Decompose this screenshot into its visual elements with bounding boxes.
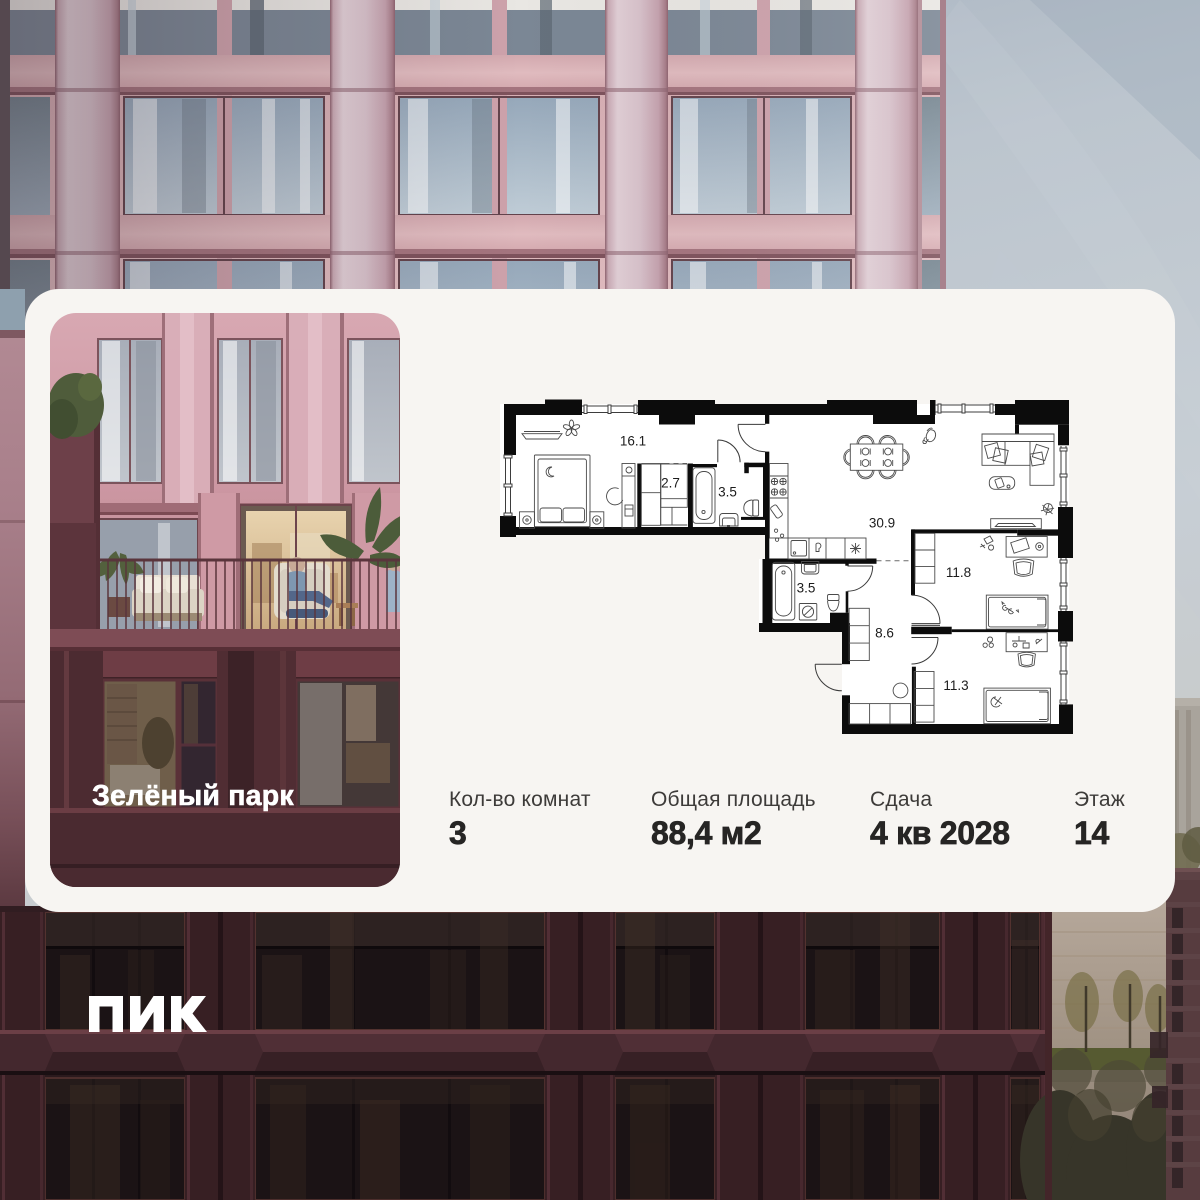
svg-text:3.5: 3.5 (797, 581, 816, 596)
svg-text:30.9: 30.9 (869, 516, 895, 531)
svg-text:11.3: 11.3 (943, 678, 968, 693)
svg-text:16.1: 16.1 (620, 434, 646, 449)
svg-text:2.7: 2.7 (661, 476, 680, 491)
svg-text:8.6: 8.6 (875, 626, 894, 641)
svg-text:3.5: 3.5 (718, 485, 737, 500)
svg-text:11.8: 11.8 (946, 565, 971, 580)
svg-text:Зелёный парк: Зелёный парк (92, 780, 294, 812)
